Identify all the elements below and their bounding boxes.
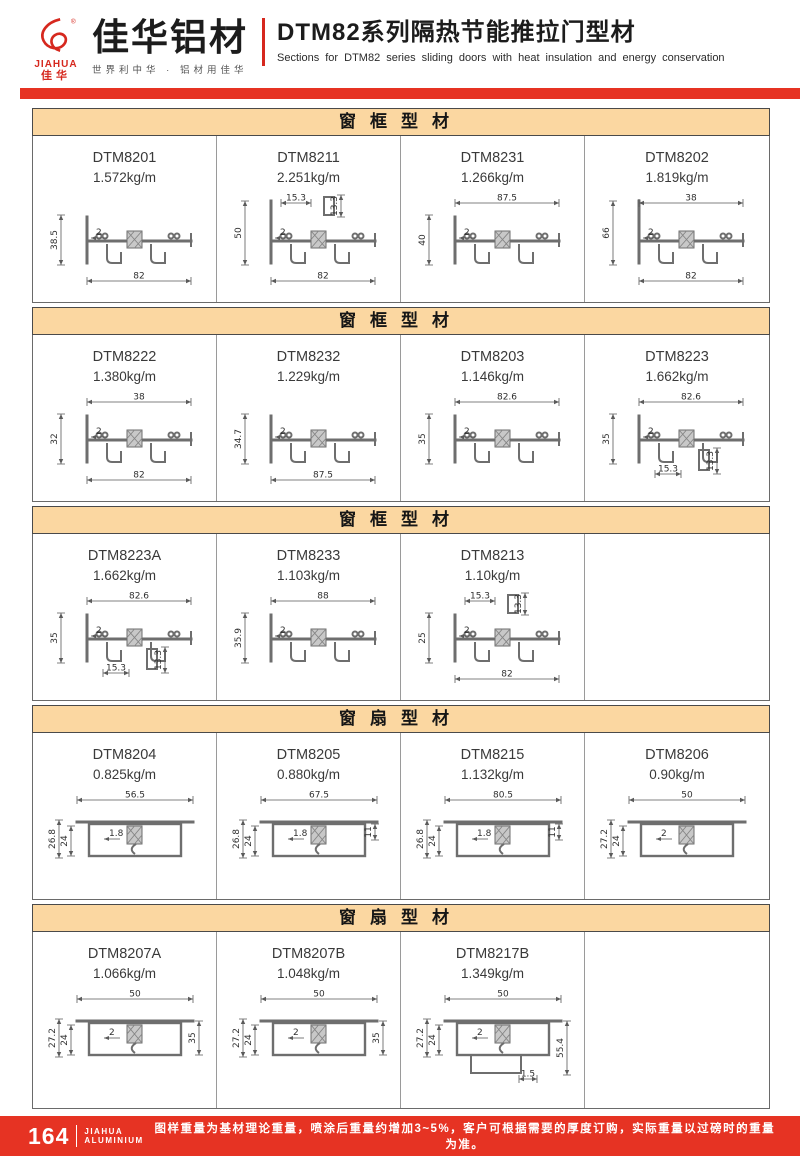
svg-text:24: 24 bbox=[428, 1034, 438, 1046]
profile-weight: 1.662kg/m bbox=[585, 367, 769, 386]
profile-drawing: 5027.224255.41.5 bbox=[409, 985, 577, 1089]
svg-text:15.3: 15.3 bbox=[469, 592, 489, 602]
profile-cell: DTM82131.10kg/m15.313.325282 bbox=[401, 534, 585, 700]
section: 窗扇型材DTM82040.825kg/m56.526.8241.8DTM8205… bbox=[32, 705, 770, 900]
section-header: 窗扇型材 bbox=[32, 705, 770, 733]
profile-model: DTM8232 bbox=[217, 348, 400, 367]
profile-model: DTM8231 bbox=[401, 149, 584, 168]
svg-text:87.5: 87.5 bbox=[312, 471, 332, 481]
svg-text:®: ® bbox=[71, 17, 76, 25]
svg-text:2: 2 bbox=[464, 626, 470, 636]
section-title: 窗扇型材 bbox=[339, 908, 463, 927]
svg-text:35: 35 bbox=[602, 433, 612, 444]
profile-drawing: 15.313.325282 bbox=[409, 587, 577, 691]
profile-model: DTM8206 bbox=[585, 746, 769, 765]
jiahua-logo-icon: ® bbox=[34, 16, 78, 54]
profile-cell: DTM82151.132kg/m80.526.8241.811 bbox=[401, 733, 585, 899]
profile-drawing: 5027.224235 bbox=[225, 985, 393, 1089]
svg-text:50: 50 bbox=[681, 791, 693, 801]
svg-text:26.8: 26.8 bbox=[416, 829, 426, 849]
svg-text:88: 88 bbox=[317, 592, 329, 602]
footer-brand: JIAHUA ALUMINIUM bbox=[84, 1127, 143, 1145]
profile-cell: DTM82231.662kg/m82.635215.313.3 bbox=[585, 335, 769, 501]
svg-text:24: 24 bbox=[244, 1034, 254, 1046]
svg-text:35.9: 35.9 bbox=[234, 628, 244, 648]
profile-model: DTM8207B bbox=[217, 945, 400, 964]
profile-weight: 1.819kg/m bbox=[585, 168, 769, 187]
svg-text:15.3: 15.3 bbox=[105, 664, 125, 674]
svg-text:2: 2 bbox=[96, 228, 102, 238]
profile-cell: DTM82321.229kg/m34.7287.5 bbox=[217, 335, 401, 501]
profile-drawing: 82.635215.313.3 bbox=[41, 587, 209, 691]
svg-text:87.5: 87.5 bbox=[496, 194, 516, 204]
profile-drawing: 38.5282 bbox=[41, 189, 209, 293]
profile-drawing: 82.635215.313.3 bbox=[593, 388, 761, 492]
svg-text:35: 35 bbox=[188, 1032, 198, 1043]
footer-divider bbox=[76, 1125, 77, 1147]
profile-cell: DTM82221.380kg/m3832282 bbox=[33, 335, 217, 501]
profile-weight: 1.572kg/m bbox=[33, 168, 216, 187]
svg-text:82: 82 bbox=[501, 670, 512, 680]
section-row: DTM82011.572kg/m38.5282DTM82112.251kg/m1… bbox=[32, 136, 770, 303]
empty-cell bbox=[585, 932, 769, 1108]
profile-model: DTM8217B bbox=[401, 945, 584, 964]
svg-text:24: 24 bbox=[244, 835, 254, 847]
svg-text:27.2: 27.2 bbox=[600, 829, 610, 849]
svg-text:26.8: 26.8 bbox=[48, 829, 58, 849]
section-header: 窗框型材 bbox=[32, 108, 770, 136]
svg-text:38: 38 bbox=[685, 194, 697, 204]
profile-weight: 1.103kg/m bbox=[217, 566, 400, 585]
section-row: DTM82040.825kg/m56.526.8241.8DTM82050.88… bbox=[32, 733, 770, 900]
section: 窗框型材DTM82221.380kg/m3832282DTM82321.229k… bbox=[32, 307, 770, 502]
footer-brand-top: JIAHUA bbox=[84, 1127, 123, 1136]
svg-text:50: 50 bbox=[129, 990, 141, 1000]
svg-text:11: 11 bbox=[548, 826, 558, 837]
profile-cell: DTM82011.572kg/m38.5282 bbox=[33, 136, 217, 302]
title-block: DTM82系列隔热节能推拉门型材 Sections for DTM82 seri… bbox=[277, 10, 725, 64]
profile-weight: 1.066kg/m bbox=[33, 964, 216, 983]
empty-cell bbox=[585, 534, 769, 700]
svg-text:2: 2 bbox=[464, 427, 470, 437]
svg-text:13.3: 13.3 bbox=[514, 594, 524, 614]
svg-text:2: 2 bbox=[293, 1028, 299, 1038]
profile-drawing: 34.7287.5 bbox=[225, 388, 393, 492]
profile-weight: 0.825kg/m bbox=[33, 765, 216, 784]
svg-text:27.2: 27.2 bbox=[48, 1028, 58, 1048]
svg-text:38: 38 bbox=[133, 393, 145, 403]
profile-cell: DTM8207A1.066kg/m5027.224235 bbox=[33, 932, 217, 1108]
profile-model: DTM8202 bbox=[585, 149, 769, 168]
profile-model: DTM8211 bbox=[217, 149, 400, 168]
section-header: 窗框型材 bbox=[32, 307, 770, 335]
brand-name: 佳华铝材 bbox=[92, 18, 248, 58]
svg-text:13.3: 13.3 bbox=[330, 196, 340, 216]
profile-cell: DTM8207B1.048kg/m5027.224235 bbox=[217, 932, 401, 1108]
profile-model: DTM8203 bbox=[401, 348, 584, 367]
svg-text:82.6: 82.6 bbox=[496, 393, 516, 403]
svg-text:82.6: 82.6 bbox=[128, 592, 148, 602]
brand-slogan: 世界利中华 · 铝材用佳华 bbox=[92, 62, 248, 76]
profile-model: DTM8223 bbox=[585, 348, 769, 367]
section-row: DTM82221.380kg/m3832282DTM82321.229kg/m3… bbox=[32, 335, 770, 502]
svg-text:2: 2 bbox=[96, 626, 102, 636]
svg-text:24: 24 bbox=[428, 835, 438, 847]
profile-drawing: 80.526.8241.811 bbox=[409, 786, 577, 890]
section-header: 窗扇型材 bbox=[32, 904, 770, 932]
profile-drawing: 67.526.8241.811 bbox=[225, 786, 393, 890]
profile-model: DTM8215 bbox=[401, 746, 584, 765]
svg-text:25: 25 bbox=[418, 632, 428, 643]
section-title: 窗框型材 bbox=[339, 311, 463, 330]
profile-cell: DTM82331.103kg/m8835.92 bbox=[217, 534, 401, 700]
svg-text:13.3: 13.3 bbox=[706, 451, 716, 471]
logo-text-cn: 佳华 bbox=[28, 70, 84, 83]
profile-drawing: 3866282 bbox=[593, 189, 761, 293]
svg-text:82: 82 bbox=[685, 272, 696, 282]
svg-text:1.8: 1.8 bbox=[109, 829, 124, 839]
svg-text:15.3: 15.3 bbox=[658, 465, 678, 475]
profile-cell: DTM82060.90kg/m5027.2242 bbox=[585, 733, 769, 899]
svg-text:15.3: 15.3 bbox=[285, 194, 305, 204]
header-divider bbox=[262, 18, 265, 66]
svg-text:56.5: 56.5 bbox=[124, 791, 144, 801]
profile-cell: DTM8217B1.349kg/m5027.224255.41.5 bbox=[401, 932, 585, 1108]
profile-cell: DTM82112.251kg/m15.313.350282 bbox=[217, 136, 401, 302]
svg-text:82.6: 82.6 bbox=[681, 393, 701, 403]
svg-text:27.2: 27.2 bbox=[416, 1028, 426, 1048]
section-row: DTM8223A1.662kg/m82.635215.313.3DTM82331… bbox=[32, 534, 770, 701]
profile-weight: 2.251kg/m bbox=[217, 168, 400, 187]
section: 窗扇型材DTM8207A1.066kg/m5027.224235DTM8207B… bbox=[32, 904, 770, 1109]
profile-cell: DTM82021.819kg/m3866282 bbox=[585, 136, 769, 302]
profile-model: DTM8201 bbox=[33, 149, 216, 168]
profile-weight: 1.266kg/m bbox=[401, 168, 584, 187]
svg-text:24: 24 bbox=[60, 835, 70, 847]
profile-weight: 1.146kg/m bbox=[401, 367, 584, 386]
page-title: DTM82系列隔热节能推拉门型材 bbox=[277, 18, 725, 48]
profile-weight: 1.662kg/m bbox=[33, 566, 216, 585]
svg-text:80.5: 80.5 bbox=[492, 791, 512, 801]
svg-text:1.8: 1.8 bbox=[477, 829, 492, 839]
profile-cell: DTM82031.146kg/m82.6352 bbox=[401, 335, 585, 501]
svg-text:2: 2 bbox=[280, 427, 286, 437]
svg-text:67.5: 67.5 bbox=[308, 791, 328, 801]
svg-text:11: 11 bbox=[364, 826, 374, 837]
accent-bar bbox=[20, 88, 800, 99]
profile-weight: 1.229kg/m bbox=[217, 367, 400, 386]
profile-drawing: 5027.224235 bbox=[41, 985, 209, 1089]
profile-drawing: 5027.2242 bbox=[593, 786, 761, 890]
profile-weight: 1.132kg/m bbox=[401, 765, 584, 784]
svg-text:66: 66 bbox=[602, 227, 612, 239]
section-title: 窗扇型材 bbox=[339, 709, 463, 728]
svg-text:50: 50 bbox=[497, 990, 509, 1000]
svg-text:34.7: 34.7 bbox=[234, 429, 244, 449]
profile-model: DTM8204 bbox=[33, 746, 216, 765]
svg-text:2: 2 bbox=[648, 228, 654, 238]
profile-cell: DTM82311.266kg/m87.5402 bbox=[401, 136, 585, 302]
profile-model: DTM8233 bbox=[217, 547, 400, 566]
profile-model: DTM8213 bbox=[401, 547, 584, 566]
page-footer: 164 JIAHUA ALUMINIUM 图样重量为基材理论重量，喷涂后重量约增… bbox=[0, 1116, 800, 1156]
svg-text:2: 2 bbox=[477, 1028, 483, 1038]
footer-note: 图样重量为基材理论重量，喷涂后重量约增加3~5%，客户可根据需要的厚度订购，实际… bbox=[144, 1120, 800, 1152]
brand-block: 佳华铝材 世界利中华 · 铝材用佳华 bbox=[92, 10, 248, 76]
footer-brand-bottom: ALUMINIUM bbox=[84, 1136, 143, 1145]
svg-text:82: 82 bbox=[133, 272, 144, 282]
page-number: 164 bbox=[28, 1123, 69, 1150]
profile-weight: 0.90kg/m bbox=[585, 765, 769, 784]
svg-text:24: 24 bbox=[60, 1034, 70, 1046]
profile-drawing: 56.526.8241.8 bbox=[41, 786, 209, 890]
profile-model: DTM8207A bbox=[33, 945, 216, 964]
profile-cell: DTM82040.825kg/m56.526.8241.8 bbox=[33, 733, 217, 899]
section-header: 窗框型材 bbox=[32, 506, 770, 534]
profile-model: DTM8223A bbox=[33, 547, 216, 566]
profile-weight: 1.10kg/m bbox=[401, 566, 584, 585]
section-title: 窗框型材 bbox=[339, 510, 463, 529]
svg-text:1.8: 1.8 bbox=[293, 829, 308, 839]
profile-cell: DTM8223A1.662kg/m82.635215.313.3 bbox=[33, 534, 217, 700]
svg-text:35: 35 bbox=[418, 433, 428, 444]
profile-cell: DTM82050.880kg/m67.526.8241.811 bbox=[217, 733, 401, 899]
profile-drawing: 3832282 bbox=[41, 388, 209, 492]
svg-text:2: 2 bbox=[96, 427, 102, 437]
section-title: 窗框型材 bbox=[339, 112, 463, 131]
svg-text:1.5: 1.5 bbox=[520, 1070, 534, 1080]
svg-text:40: 40 bbox=[418, 234, 428, 246]
page-subtitle: Sections for DTM82 series sliding doors … bbox=[277, 52, 725, 64]
profile-model: DTM8205 bbox=[217, 746, 400, 765]
profile-model: DTM8222 bbox=[33, 348, 216, 367]
svg-text:27.2: 27.2 bbox=[232, 1028, 242, 1048]
section: 窗框型材DTM82011.572kg/m38.5282DTM82112.251k… bbox=[32, 108, 770, 303]
profile-weight: 1.380kg/m bbox=[33, 367, 216, 386]
profile-weight: 1.048kg/m bbox=[217, 964, 400, 983]
profile-drawing: 82.6352 bbox=[409, 388, 577, 492]
logo-text-en: JIAHUA bbox=[28, 59, 84, 70]
svg-text:13.3: 13.3 bbox=[154, 650, 164, 670]
profile-weight: 0.880kg/m bbox=[217, 765, 400, 784]
svg-text:82: 82 bbox=[317, 272, 328, 282]
svg-text:26.8: 26.8 bbox=[232, 829, 242, 849]
svg-text:50: 50 bbox=[313, 990, 325, 1000]
svg-text:35: 35 bbox=[372, 1032, 382, 1043]
svg-text:2: 2 bbox=[109, 1028, 115, 1038]
logo-block: ® JIAHUA 佳华 bbox=[28, 10, 84, 83]
svg-text:2: 2 bbox=[648, 427, 654, 437]
profile-drawing: 87.5402 bbox=[409, 189, 577, 293]
svg-text:35: 35 bbox=[50, 632, 60, 643]
svg-text:24: 24 bbox=[612, 835, 622, 847]
svg-text:2: 2 bbox=[661, 829, 667, 839]
section: 窗框型材DTM8223A1.662kg/m82.635215.313.3DTM8… bbox=[32, 506, 770, 701]
profile-drawing: 8835.92 bbox=[225, 587, 393, 691]
profile-table: 窗框型材DTM82011.572kg/m38.5282DTM82112.251k… bbox=[32, 108, 770, 1109]
profile-weight: 1.349kg/m bbox=[401, 964, 584, 983]
svg-text:38.5: 38.5 bbox=[50, 230, 60, 250]
svg-text:32: 32 bbox=[50, 433, 60, 444]
page-header: ® JIAHUA 佳华 佳华铝材 世界利中华 · 铝材用佳华 DTM82系列隔热… bbox=[28, 10, 772, 80]
svg-text:55.4: 55.4 bbox=[556, 1038, 566, 1058]
section-row: DTM8207A1.066kg/m5027.224235DTM8207B1.04… bbox=[32, 932, 770, 1109]
svg-text:2: 2 bbox=[280, 228, 286, 238]
svg-text:2: 2 bbox=[280, 626, 286, 636]
svg-text:50: 50 bbox=[234, 227, 244, 239]
svg-text:2: 2 bbox=[464, 228, 470, 238]
svg-text:82: 82 bbox=[133, 471, 144, 481]
profile-drawing: 15.313.350282 bbox=[225, 189, 393, 293]
